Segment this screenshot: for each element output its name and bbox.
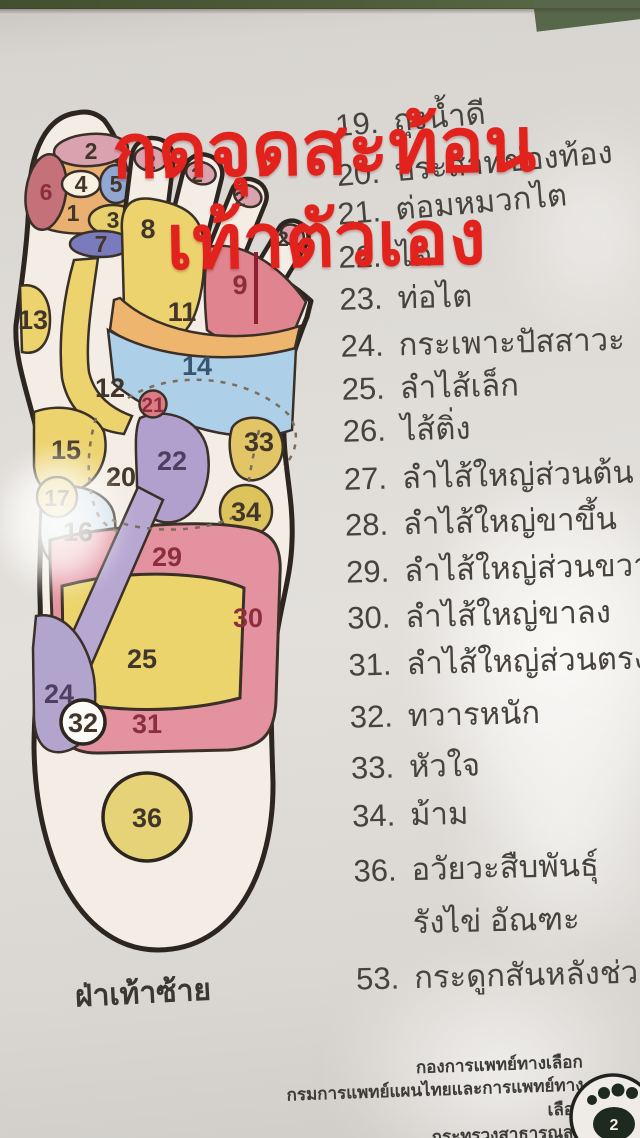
list-item: 29.ลำไส้ใหญ่ส่วนขวาง <box>346 548 640 590</box>
list-item-number: 33. <box>351 750 410 786</box>
foot-caption: ฝ่าเท้าซ้าย <box>57 966 229 1022</box>
list-item-continuation: รังไข่ อัณฑะ <box>354 902 580 942</box>
zone-label: 36 <box>132 803 162 833</box>
list-item: 30.ลำไส้ใหญ่ขาลง <box>347 595 611 636</box>
list-item-number: 30. <box>347 600 406 636</box>
zone-label: 7 <box>95 231 108 257</box>
zone-label: 15 <box>51 435 81 465</box>
list-item-label: อวัยวะสืบพันธุ์ <box>411 849 599 888</box>
zone-label: 12 <box>95 373 125 403</box>
logo-number: 2 <box>610 1117 619 1134</box>
zone-label: 6 <box>40 179 53 205</box>
list-item: 34.ม้าม <box>352 797 469 834</box>
zone-label: 32 <box>68 708 98 738</box>
list-item-number: 32. <box>349 699 408 735</box>
list-item-label: กระเพาะปัสสาวะ <box>398 323 625 363</box>
list-item: 26.ไส้ติ่ง <box>342 412 471 449</box>
list-item-number <box>354 906 413 942</box>
list-item: 25.ลำไส้เล็ก <box>341 368 519 406</box>
footprint-logo: 2 <box>558 1062 640 1138</box>
zone-label: 17 <box>44 485 70 511</box>
list-item-number: 31. <box>348 647 407 683</box>
logo-toe-dot <box>612 1084 625 1097</box>
list-item-label: ลำไส้ใหญ่ขาลง <box>405 595 611 634</box>
list-item: 31.ลำไส้ใหญ่ส่วนตรง <box>348 641 640 682</box>
zone-label: 14 <box>182 351 212 381</box>
list-item: 28.ลำไส้ใหญ่ขาขึ้น <box>345 502 618 543</box>
list-item-number: 24. <box>340 328 399 364</box>
list-item-label: ลำไส้เล็ก <box>399 368 519 405</box>
list-item-label: ทวารหนัก <box>407 696 540 733</box>
zone-label: 24 <box>44 679 74 709</box>
publisher-credits: กองการแพทย์ทางเลือก กรมการแพทย์แผนไทยและ… <box>252 1050 585 1138</box>
zone-label: 13 <box>18 305 48 335</box>
list-item-label: ไส้ติ่ง <box>400 412 471 448</box>
list-item-label: ลำไส้ใหญ่ส่วนต้น <box>401 456 634 496</box>
photo-of-reflexology-chart: 2 2 2 2 2 6 4 5 1 3 7 8 9 11 13 12 14 21… <box>0 0 640 1138</box>
list-item-label: รังไข่ อัณฑะ <box>412 902 580 940</box>
zone-label: 25 <box>127 644 157 674</box>
list-item-number: 26. <box>342 413 401 449</box>
zone-label: 20 <box>106 462 136 492</box>
zone-label: 4 <box>75 171 88 197</box>
zone-label: 2 <box>85 138 98 164</box>
zone-label: 33 <box>244 427 274 457</box>
zone-label: 34 <box>231 497 261 527</box>
zone-label: 1 <box>67 200 80 226</box>
zone-label: 22 <box>157 446 187 476</box>
zone-label: 8 <box>140 214 155 244</box>
list-item-number: 29. <box>346 554 405 590</box>
list-item: 36.อวัยวะสืบพันธุ์ <box>353 849 599 889</box>
zone-label: 21 <box>141 394 165 417</box>
list-item-label: ลำไส้ใหญ่ส่วนตรง <box>406 641 640 681</box>
list-item: 32.ทวารหนัก <box>349 696 540 735</box>
list-item: 27.ลำไส้ใหญ่ส่วนต้น <box>344 456 634 497</box>
list-item: 24.กระเพาะปัสสาวะ <box>340 323 625 364</box>
logo-toe-dot <box>626 1087 638 1099</box>
list-item-label: ลำไส้ใหญ่ส่วนขวาง <box>404 548 640 588</box>
list-item: 53.กระดูกสันหลังช่วงคอ <box>356 954 640 996</box>
list-item-number: 27. <box>344 461 403 497</box>
list-item-label: หัวใจ <box>409 748 481 784</box>
zone-label: 16 <box>63 517 93 547</box>
list-item-label: ม้าม <box>410 797 469 833</box>
list-item-label: กระดูกสันหลังช่วงคอ <box>414 954 640 995</box>
list-item-number: 53. <box>356 961 415 997</box>
list-item-number: 36. <box>353 853 412 889</box>
logo-toe-dot <box>587 1095 597 1105</box>
overlay-title-line2: เท้าตัวเอง <box>157 177 495 303</box>
logo-toe-dot <box>598 1087 610 1099</box>
zone-label: 30 <box>233 603 263 633</box>
zone-label: 31 <box>132 709 162 739</box>
list-item-number: 28. <box>345 507 404 543</box>
zone-label: 29 <box>152 542 182 572</box>
list-item: 33.หัวใจ <box>351 748 481 785</box>
list-item-number: 34. <box>352 798 411 834</box>
list-item-number: 25. <box>341 371 400 407</box>
list-item-label: ลำไส้ใหญ่ขาขึ้น <box>403 502 618 541</box>
